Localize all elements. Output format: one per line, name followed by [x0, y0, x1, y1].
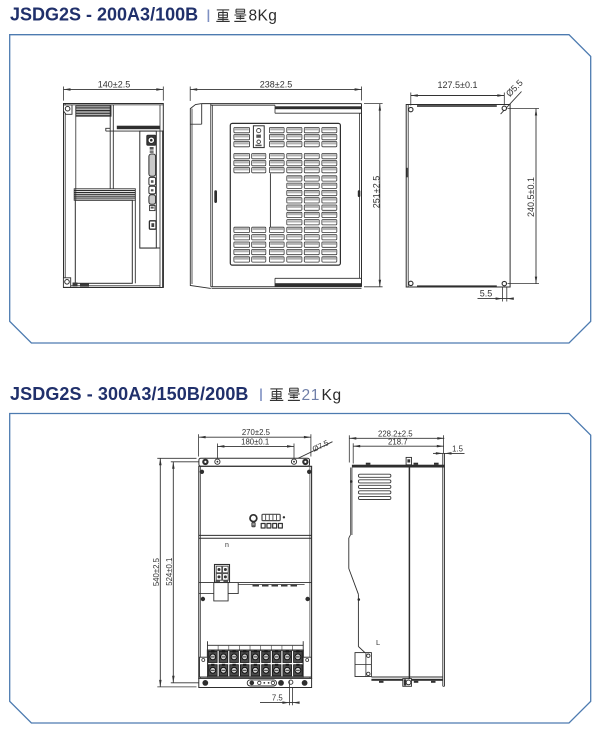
svg-text:JSDG2S - 200A3/100B: JSDG2S - 200A3/100B	[10, 5, 198, 25]
svg-text:524±0.1: 524±0.1	[165, 558, 174, 586]
svg-text:238±2.5: 238±2.5	[260, 80, 292, 90]
svg-text:140±2.5: 140±2.5	[98, 80, 130, 90]
svg-text:JSDG2S - 300A3/150B/200B: JSDG2S - 300A3/150B/200B	[10, 384, 249, 404]
svg-text:127.5±0.1: 127.5±0.1	[438, 80, 478, 90]
svg-text:n: n	[225, 542, 229, 549]
svg-text:Kg: Kg	[258, 8, 278, 25]
svg-text:5.5: 5.5	[480, 289, 493, 299]
svg-text:21: 21	[302, 387, 320, 404]
svg-text:540±2.5: 540±2.5	[152, 557, 161, 586]
svg-text:1.5: 1.5	[452, 444, 464, 453]
svg-text:240.5±0.1: 240.5±0.1	[526, 177, 536, 217]
svg-text:L: L	[376, 638, 380, 647]
svg-text:180±0.1: 180±0.1	[241, 438, 269, 447]
svg-text:7.5: 7.5	[272, 694, 284, 703]
svg-text:8: 8	[249, 8, 258, 25]
svg-text:Kg: Kg	[322, 387, 342, 404]
svg-text:270±2.5: 270±2.5	[242, 428, 271, 437]
svg-text:218.7: 218.7	[388, 437, 408, 446]
